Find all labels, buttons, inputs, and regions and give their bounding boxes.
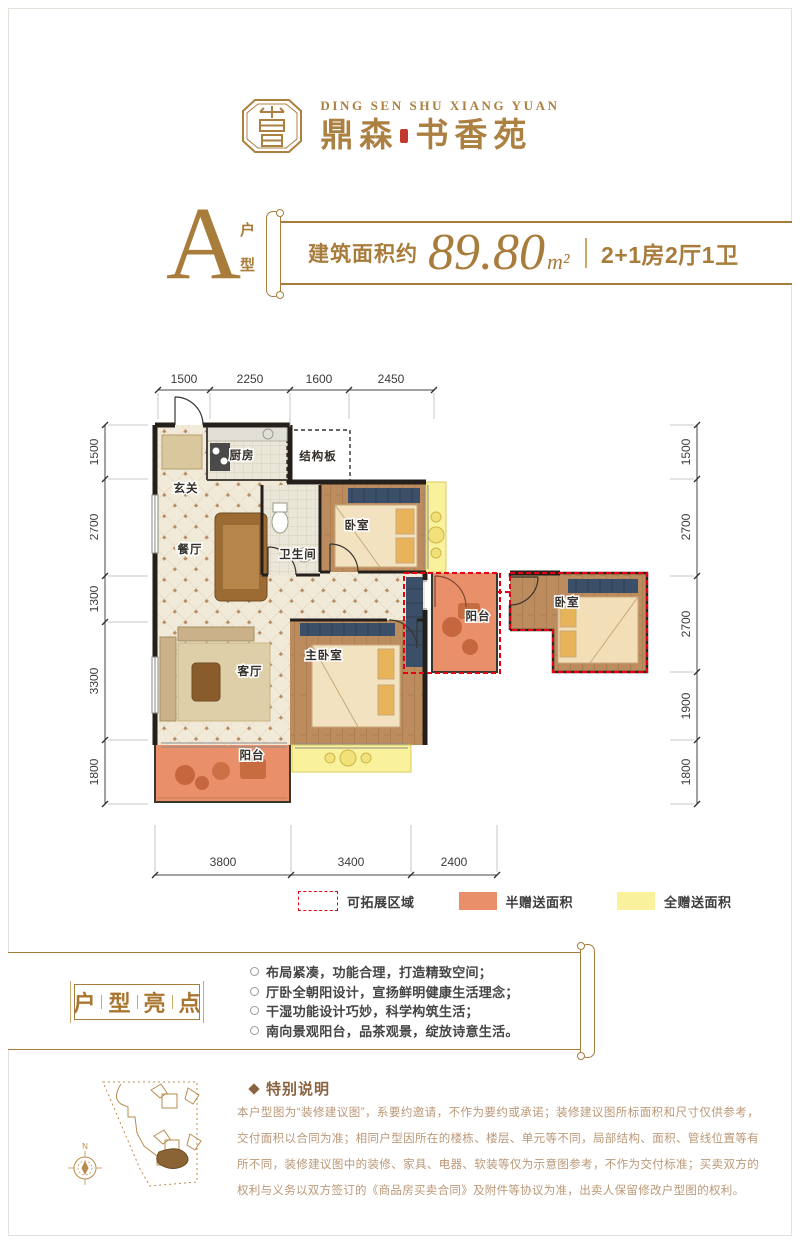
room-label-bedroom: 卧室 (345, 518, 370, 532)
dim-left-2: 2700 (90, 513, 101, 540)
brand-text: DING SEN SHU XIANG YUAN 鼎森 书香苑 (320, 98, 559, 154)
unit-type-char-2: 型 (240, 254, 255, 275)
brand-lockup: DING SEN SHU XIANG YUAN 鼎森 书香苑 (0, 95, 800, 157)
dim-bottom-3: 2400 (441, 855, 468, 869)
banner-scroll-cap (266, 211, 281, 297)
legend-half-gift-swatch (459, 892, 497, 910)
highlights-title-char: 点 (179, 986, 201, 1018)
highlight-item: 南向景观阳台，品茶观景，绽放诗意生活。 (250, 1021, 519, 1041)
room-label-living: 客厅 (237, 664, 263, 678)
unit-type-char-1: 户 (240, 219, 255, 240)
floor-plan: 1500 2250 1600 2450 3800 3400 2400 1500 … (90, 355, 715, 895)
area-unit: m² (547, 249, 569, 275)
room-label-balcony-south: 阳台 (240, 748, 265, 762)
ring-bullet-icon (250, 987, 259, 996)
brand-emblem-icon (240, 95, 304, 157)
floorplan-poster-page: { "brand": { "name_en": "DING SEN SHU XI… (0, 0, 800, 1244)
highlight-text: 南向景观阳台，品茶观景，绽放诗意生活。 (266, 1021, 519, 1040)
ring-bullet-icon (250, 967, 259, 976)
dim-top-2: 2250 (237, 372, 264, 386)
ring-bullet-icon (250, 1026, 259, 1035)
highlights-title: 户型亮点 (73, 986, 200, 1018)
highlights-title-box: 户型亮点 (74, 984, 200, 1020)
area-prefix: 建筑面积约 (308, 238, 418, 268)
legend-expandable-swatch (298, 891, 338, 911)
dim-left-4: 3300 (90, 667, 101, 694)
legend-full-gift-label: 全赠送面积 (664, 892, 732, 911)
dim-right-1: 1500 (679, 438, 693, 465)
brand-name-cn: 鼎森 书香苑 (320, 118, 559, 154)
ring-bullet-icon (250, 1006, 259, 1015)
highlighted-building (157, 1149, 188, 1169)
brand-cn-right: 书香苑 (415, 118, 532, 154)
site-buildings (117, 1084, 202, 1169)
notes-title: 特别说明 (266, 1078, 330, 1099)
dim-left-5: 1800 (90, 758, 101, 785)
compass-north-label: N (82, 1142, 88, 1151)
site-map: N (55, 1070, 230, 1220)
dim-right-5: 1800 (679, 758, 693, 785)
dim-bottom-1: 3800 (210, 855, 237, 869)
highlights-title-char: 亮 (144, 986, 166, 1018)
layout-description: 2+1房2厅1卫 (601, 236, 739, 270)
highlight-item: 干湿功能设计巧妙，科学构筑生活； (250, 1001, 519, 1021)
dim-top-1: 1500 (171, 372, 198, 386)
highlight-item: 厅卧全朝阳设计，宣扬鲜明健康生活理念； (250, 982, 519, 1002)
room-label-kitchen: 厨房 (230, 448, 255, 462)
highlights-scroll-cap (580, 944, 595, 1058)
room-label-dining: 餐厅 (177, 542, 203, 556)
highlight-text: 厅卧全朝阳设计，宣扬鲜明健康生活理念； (266, 982, 519, 1001)
notes-title-row: 特别说明 (250, 1078, 330, 1099)
legend-half-gift-label: 半赠送面积 (506, 892, 574, 911)
legend-full-gift-swatch (617, 892, 655, 910)
room-label-entry: 玄关 (174, 481, 199, 495)
highlight-text: 干湿功能设计巧妙，科学构筑生活； (266, 1001, 479, 1020)
banner-divider (585, 238, 587, 268)
unit-type-label: 户 型 (240, 219, 255, 275)
area-banner: 建筑面积约 89.80 m² 2+1房2厅1卫 (276, 221, 792, 285)
highlights-list: 布局紧凑，功能合理，打造精致空间； 厅卧全朝阳设计，宣扬鲜明健康生活理念； 干湿… (250, 962, 519, 1040)
room-label-slab: 结构板 (298, 449, 337, 463)
brand-name-en: DING SEN SHU XIANG YUAN (320, 98, 559, 114)
dim-top-3: 1600 (306, 372, 333, 386)
seal-mark-icon (400, 129, 408, 143)
dim-right-2: 2700 (679, 513, 693, 540)
area-value: 89.80 (428, 227, 545, 279)
dim-left-1: 1500 (90, 438, 101, 465)
dim-right-3: 2700 (679, 610, 693, 637)
dim-right-4: 1900 (679, 692, 693, 719)
room-label-bath: 卫生间 (279, 547, 317, 561)
room-label-balcony-east: 阳台 (466, 609, 491, 623)
dim-top-4: 2450 (378, 372, 405, 386)
highlight-text: 布局紧凑，功能合理，打造精致空间； (266, 962, 492, 981)
highlights-title-char: 户 (73, 986, 95, 1018)
legend: 可拓展区域 半赠送面积 全赠送面积 (298, 891, 776, 911)
brand-cn-left: 鼎森 (320, 118, 398, 154)
compass-icon: N (68, 1142, 102, 1185)
legend-expandable-label: 可拓展区域 (347, 892, 415, 911)
dim-left-3: 1300 (90, 585, 101, 612)
highlights-title-char: 型 (108, 986, 130, 1018)
room-label-master: 主卧室 (305, 648, 343, 662)
highlight-item: 布局紧凑，功能合理，打造精致空间； (250, 962, 519, 982)
diamond-icon (248, 1083, 259, 1094)
dim-bottom-2: 3400 (338, 855, 365, 869)
notes-body: 本户型图为“装修建议图”，系要约邀请，不作为要约或承诺；装修建议图所标面积和尺寸… (237, 1100, 759, 1204)
room-label-bedroom-east: 卧室 (555, 595, 580, 609)
